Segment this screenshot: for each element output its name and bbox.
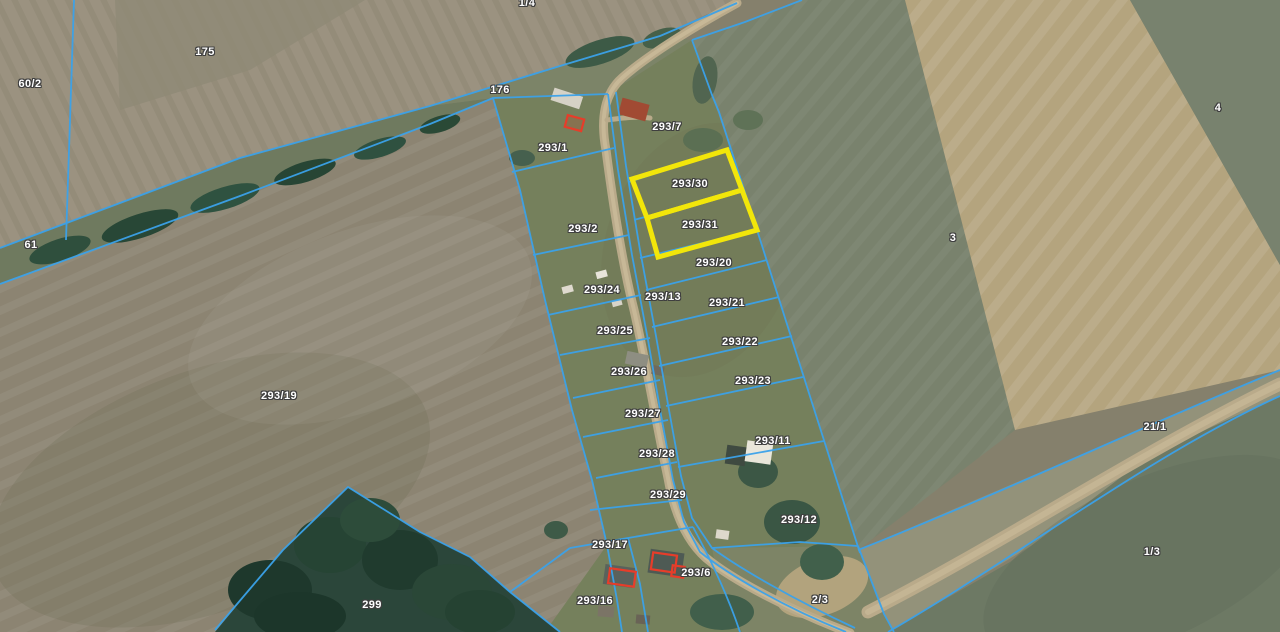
map-viewport[interactable]: 60/21751/41764613293/7293/1293/30293/312… [0, 0, 1280, 632]
terrain [0, 0, 1280, 632]
aerial-map-canvas[interactable] [0, 0, 1280, 632]
